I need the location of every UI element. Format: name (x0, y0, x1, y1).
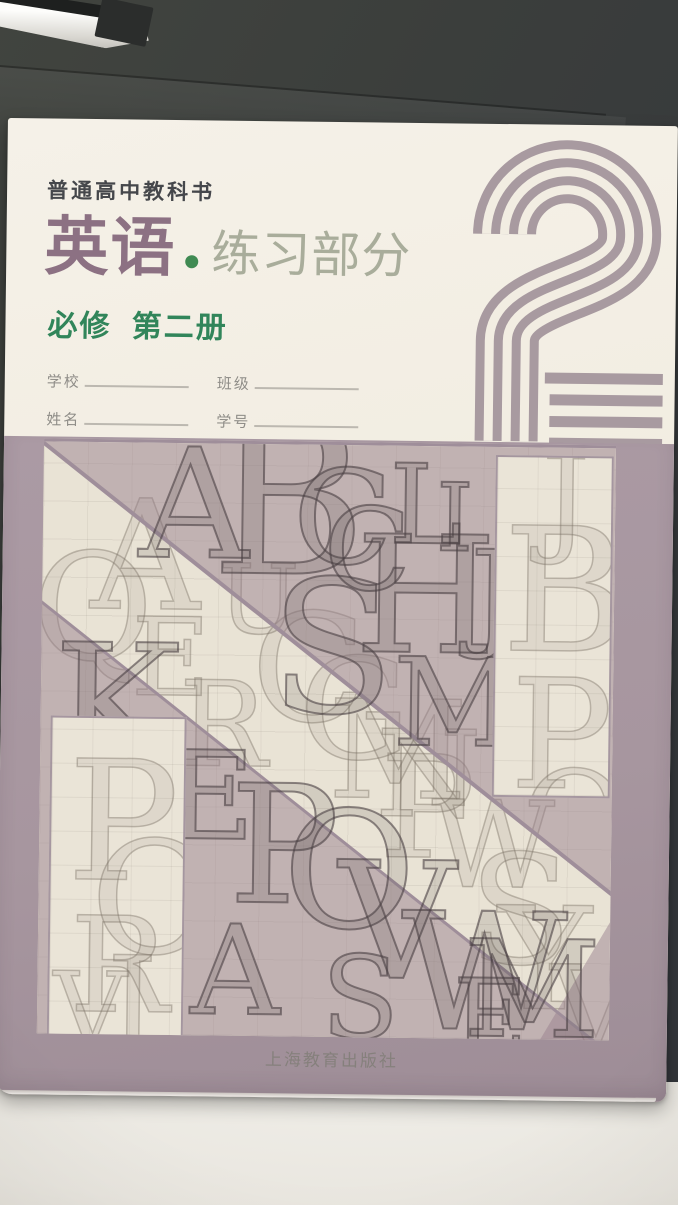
form-label-student-id: 学号 (216, 414, 250, 431)
title-separator-dot (185, 255, 198, 268)
publisher-name: 上海教育出版社 (0, 1042, 667, 1075)
collage-patch-top-right: JBPO (492, 455, 614, 798)
book-subtitle: 练习部分 (211, 230, 412, 281)
edition-label: 必修 第二册 (47, 300, 228, 346)
numeral-2-graphic (424, 118, 676, 448)
collage-letter: O (521, 753, 614, 798)
cover-lower-field: AQERUCGMNPWSYV ABCLHSCIJMEKPOVWSAME JBPO… (0, 436, 674, 1102)
collage-letter: S (321, 941, 400, 1041)
form-label-school: 学校 (47, 373, 81, 390)
form-row: 姓名学号 (46, 408, 386, 433)
book-title: 英语 (44, 214, 177, 280)
form-blank-line (255, 374, 359, 390)
collage-letter: I (436, 472, 474, 566)
form-label-class: 班级 (217, 376, 251, 393)
title-row: 英语 练习部分 (44, 214, 412, 282)
collage-patch-bottom-left: PORJV (47, 716, 187, 1040)
photo-scene: 普通高中教科书 英语 练习部分 必修 第二册 学校班级 姓名学号 (0, 0, 678, 1205)
collage-letter: A (190, 909, 281, 1034)
book-cover: 普通高中教科书 英语 练习部分 必修 第二册 学校班级 姓名学号 (0, 118, 678, 1102)
form-row: 学校班级 (47, 370, 387, 395)
collage-letter: C (323, 493, 412, 608)
form-blank-line (84, 410, 188, 426)
collage-letter: V (52, 960, 127, 1040)
series-label: 普通高中教科书 (47, 174, 215, 206)
collage-letter: E (452, 966, 528, 1040)
form-label-name: 姓名 (46, 411, 80, 428)
form-blank-line (85, 372, 189, 388)
letter-collage: AQERUCGMNPWSYV ABCLHSCIJMEKPOVWSAME JBPO… (37, 438, 616, 1040)
form-blank-line (254, 412, 358, 428)
